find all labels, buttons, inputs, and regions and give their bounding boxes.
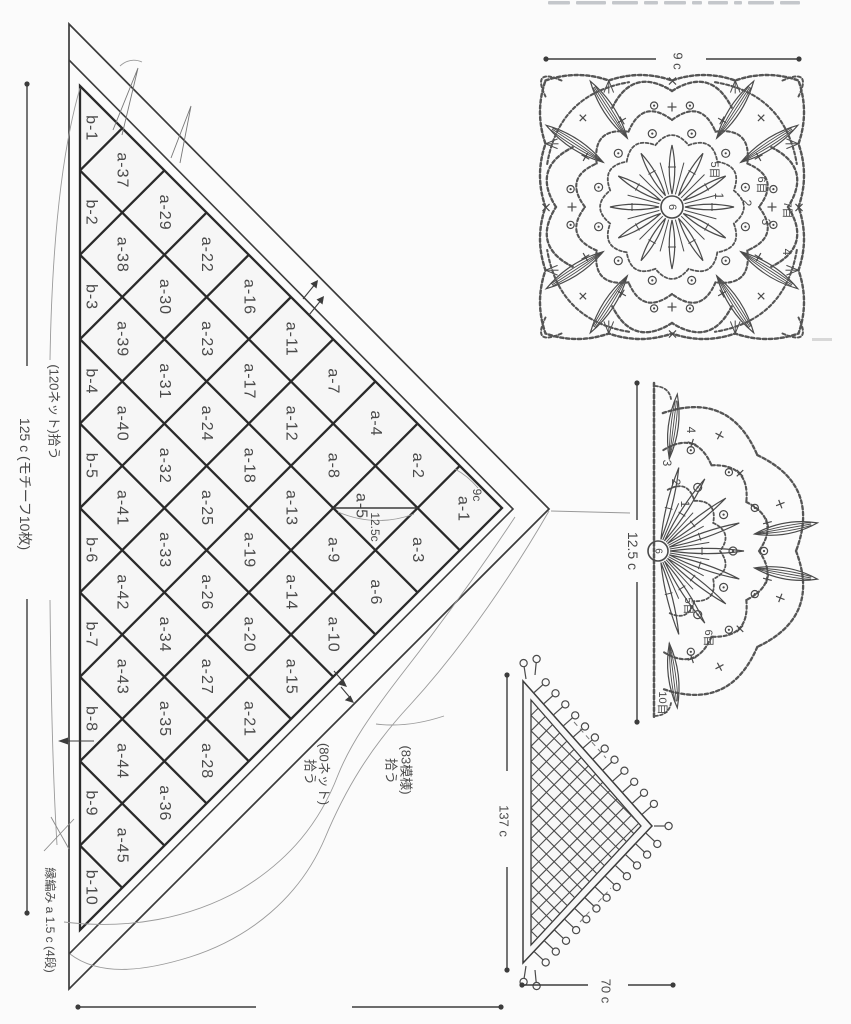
svg-text:5目: 5目 <box>708 161 720 178</box>
svg-text:a-3: a-3 <box>409 537 426 563</box>
svg-text:a-29: a-29 <box>156 195 173 231</box>
svg-text:a-33: a-33 <box>156 532 173 568</box>
svg-text:b-8: b-8 <box>83 706 100 732</box>
svg-text:a-38: a-38 <box>114 237 131 273</box>
svg-text:4: 4 <box>780 249 794 256</box>
svg-text:a-31: a-31 <box>156 363 173 399</box>
svg-text:a-4: a-4 <box>367 411 384 437</box>
svg-text:a-28: a-28 <box>198 743 215 779</box>
svg-text:70 c: 70 c <box>599 979 614 1004</box>
svg-text:(120ネット)拾う: (120ネット)拾う <box>47 364 62 459</box>
svg-text:6目: 6目 <box>755 176 767 193</box>
svg-text:a-15: a-15 <box>283 659 300 695</box>
svg-text:b-2: b-2 <box>83 200 100 226</box>
svg-text:(80ネット): (80ネット) <box>317 743 332 805</box>
svg-text:2: 2 <box>669 479 683 486</box>
svg-text:a-11: a-11 <box>283 322 300 357</box>
svg-text:a-36: a-36 <box>156 785 173 821</box>
svg-text:a-20: a-20 <box>240 617 257 653</box>
svg-text:拾う: 拾う <box>303 759 318 785</box>
svg-text:a-10: a-10 <box>325 617 342 653</box>
svg-text:a-8: a-8 <box>325 453 342 479</box>
svg-text:b-9: b-9 <box>83 790 100 816</box>
svg-text:4: 4 <box>684 427 698 434</box>
svg-text:a-42: a-42 <box>114 574 131 610</box>
svg-text:a-2: a-2 <box>409 453 426 479</box>
svg-text:a-16: a-16 <box>240 279 257 315</box>
svg-text:b-7: b-7 <box>83 622 100 648</box>
svg-text:2: 2 <box>740 200 754 207</box>
svg-text:12.5c: 12.5c <box>368 512 382 541</box>
svg-text:a-30: a-30 <box>156 279 173 315</box>
svg-text:12.5 c: 12.5 c <box>625 532 641 570</box>
svg-text:拾う: 拾う <box>384 758 399 784</box>
svg-text:b-1: b-1 <box>83 115 100 141</box>
svg-text:a-43: a-43 <box>114 659 131 695</box>
svg-text:a-19: a-19 <box>240 532 257 568</box>
svg-text:a-18: a-18 <box>240 448 257 484</box>
svg-text:a-35: a-35 <box>156 701 173 737</box>
svg-text:a-22: a-22 <box>198 237 215 273</box>
svg-text:a-40: a-40 <box>114 406 131 442</box>
svg-text:125 c (モチーフ10枚): 125 c (モチーフ10枚) <box>17 418 33 550</box>
svg-text:b-6: b-6 <box>83 537 100 563</box>
svg-text:6目: 6目 <box>702 629 714 646</box>
svg-text:3: 3 <box>660 460 674 467</box>
svg-text:a-14: a-14 <box>283 574 300 610</box>
svg-text:1: 1 <box>678 501 692 508</box>
svg-text:a-17: a-17 <box>240 363 257 399</box>
svg-text:a-34: a-34 <box>156 617 173 653</box>
svg-text:a-1: a-1 <box>455 496 472 522</box>
svg-text:10目: 10目 <box>656 691 668 714</box>
svg-text:6: 6 <box>653 548 664 554</box>
svg-text:a-9: a-9 <box>325 537 342 563</box>
svg-text:a-13: a-13 <box>283 490 300 526</box>
svg-text:(83模様): (83模様) <box>399 745 414 794</box>
svg-text:a-39: a-39 <box>114 321 131 357</box>
svg-text:a-27: a-27 <box>198 659 215 695</box>
svg-text:a-41: a-41 <box>114 490 131 526</box>
svg-text:a-25: a-25 <box>198 490 215 526</box>
svg-text:a-5: a-5 <box>353 493 370 519</box>
svg-text:a-32: a-32 <box>156 448 173 484</box>
svg-text:a-23: a-23 <box>198 321 215 357</box>
svg-text:a-12: a-12 <box>283 406 300 442</box>
svg-text:縁編み a 1.5 c (4段): 縁編み a 1.5 c (4段) <box>43 867 58 972</box>
svg-text:a-21: a-21 <box>240 701 257 737</box>
svg-text:b-4: b-4 <box>83 368 100 394</box>
svg-text:b-3: b-3 <box>83 284 100 310</box>
svg-text:137 c: 137 c <box>497 805 512 837</box>
svg-text:a-44: a-44 <box>114 743 131 779</box>
svg-text:6: 6 <box>666 204 678 210</box>
svg-text:a-7: a-7 <box>325 368 342 394</box>
svg-text:a-6: a-6 <box>367 579 384 605</box>
svg-text:9 c: 9 c <box>671 52 686 70</box>
svg-text:3: 3 <box>759 219 773 226</box>
svg-text:b-5: b-5 <box>83 453 100 479</box>
svg-text:a-45: a-45 <box>114 828 131 864</box>
svg-text:b-10: b-10 <box>83 870 100 906</box>
svg-text:7目: 7目 <box>781 201 793 218</box>
svg-text:5目: 5目 <box>682 597 694 614</box>
svg-text:a-37: a-37 <box>114 152 131 188</box>
svg-text:9c: 9c <box>470 489 484 502</box>
svg-text:1: 1 <box>712 193 726 200</box>
svg-text:a-24: a-24 <box>198 406 215 442</box>
svg-text:a-26: a-26 <box>198 574 215 610</box>
